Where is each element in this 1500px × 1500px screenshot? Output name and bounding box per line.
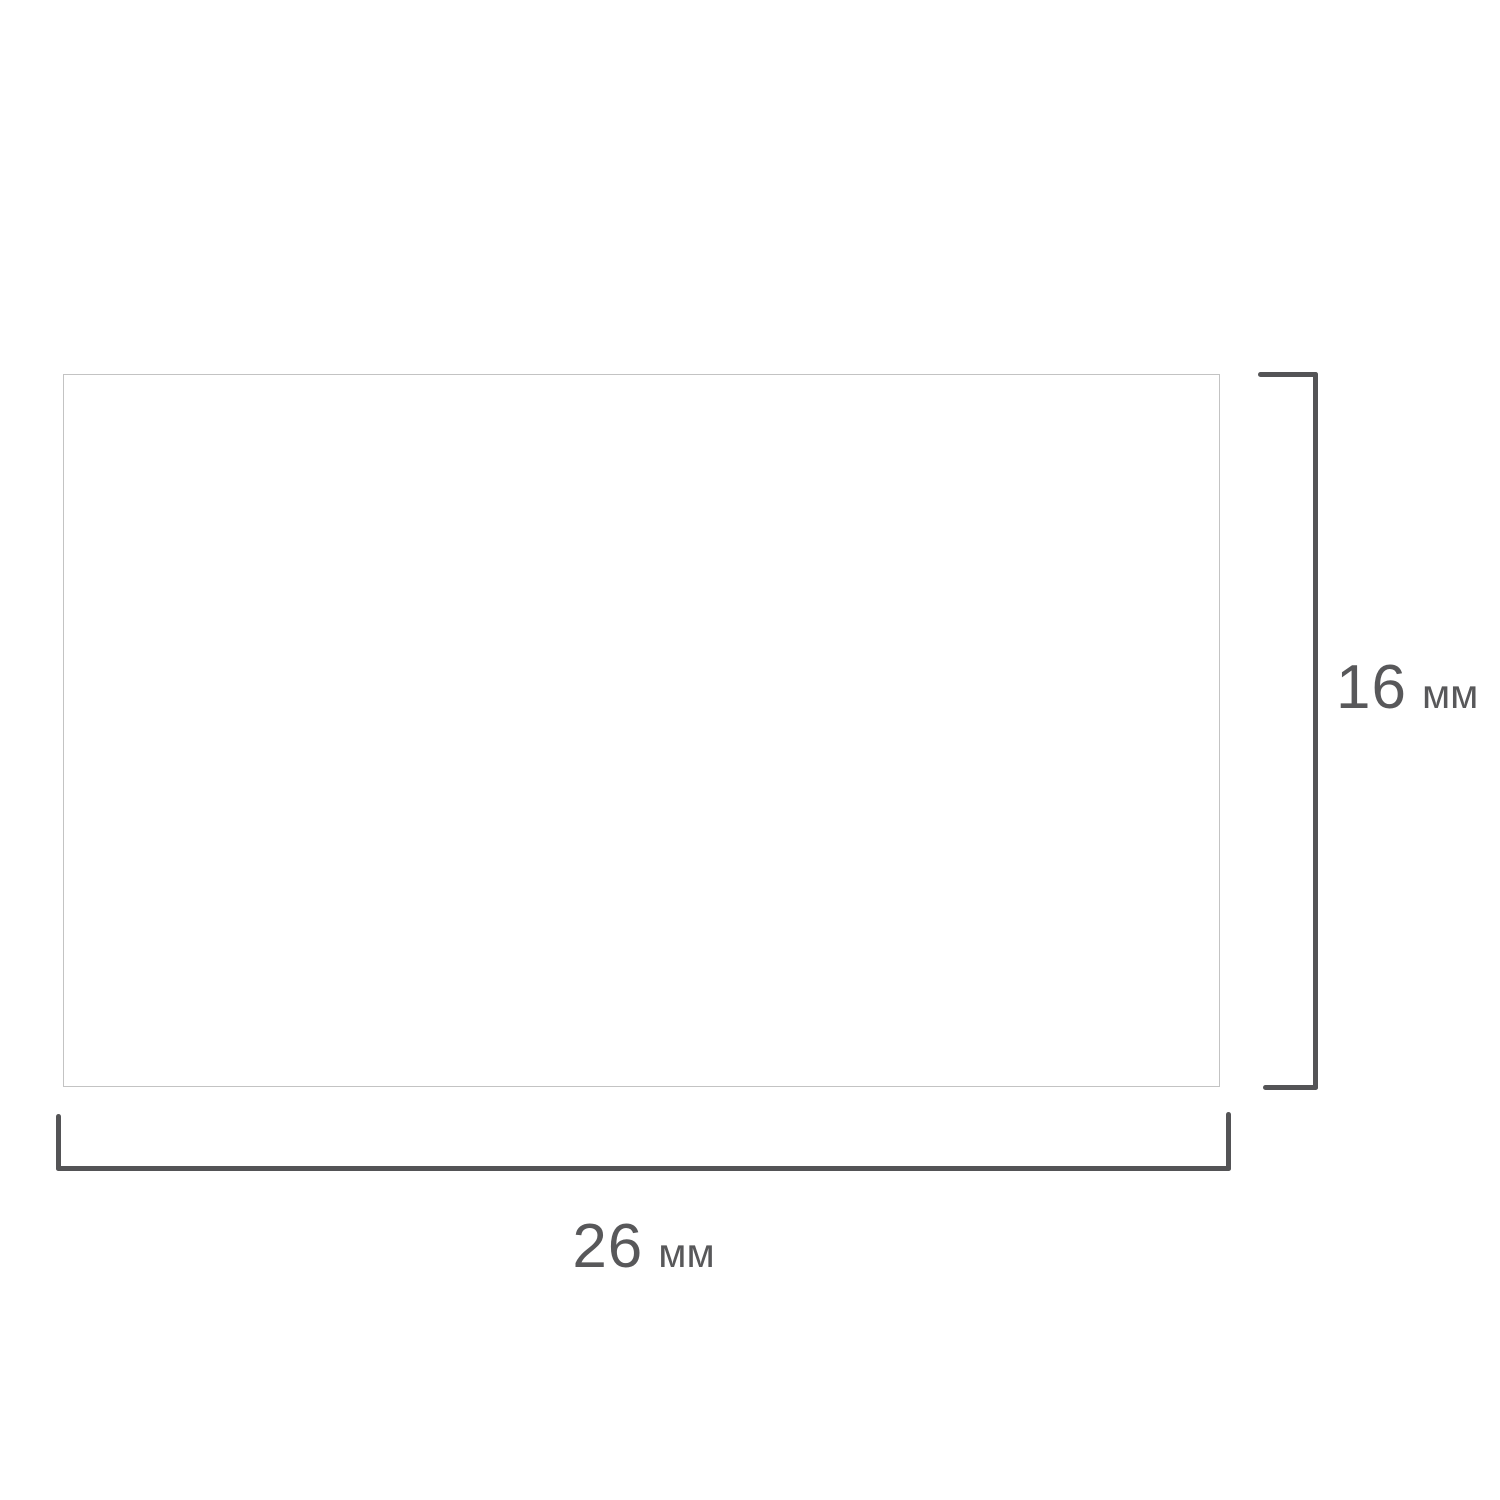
width-dimension-cap-right xyxy=(1226,1112,1231,1171)
height-dimension-cap-top xyxy=(1258,372,1318,377)
width-dimension-line xyxy=(56,1166,1231,1171)
label-rectangle xyxy=(63,374,1220,1087)
height-value: 16 xyxy=(1336,653,1407,722)
height-dimension-cap-bottom xyxy=(1263,1085,1318,1090)
width-dimension-cap-left xyxy=(56,1114,61,1171)
height-dimension-line xyxy=(1313,372,1318,1090)
dimension-diagram: 16мм 26мм xyxy=(0,0,1500,1500)
width-unit: мм xyxy=(658,1230,714,1276)
width-value: 26 xyxy=(572,1212,643,1281)
height-unit: мм xyxy=(1422,671,1478,717)
height-dimension-label: 16мм xyxy=(1336,657,1478,719)
width-dimension-label: 26мм xyxy=(56,1216,1231,1278)
